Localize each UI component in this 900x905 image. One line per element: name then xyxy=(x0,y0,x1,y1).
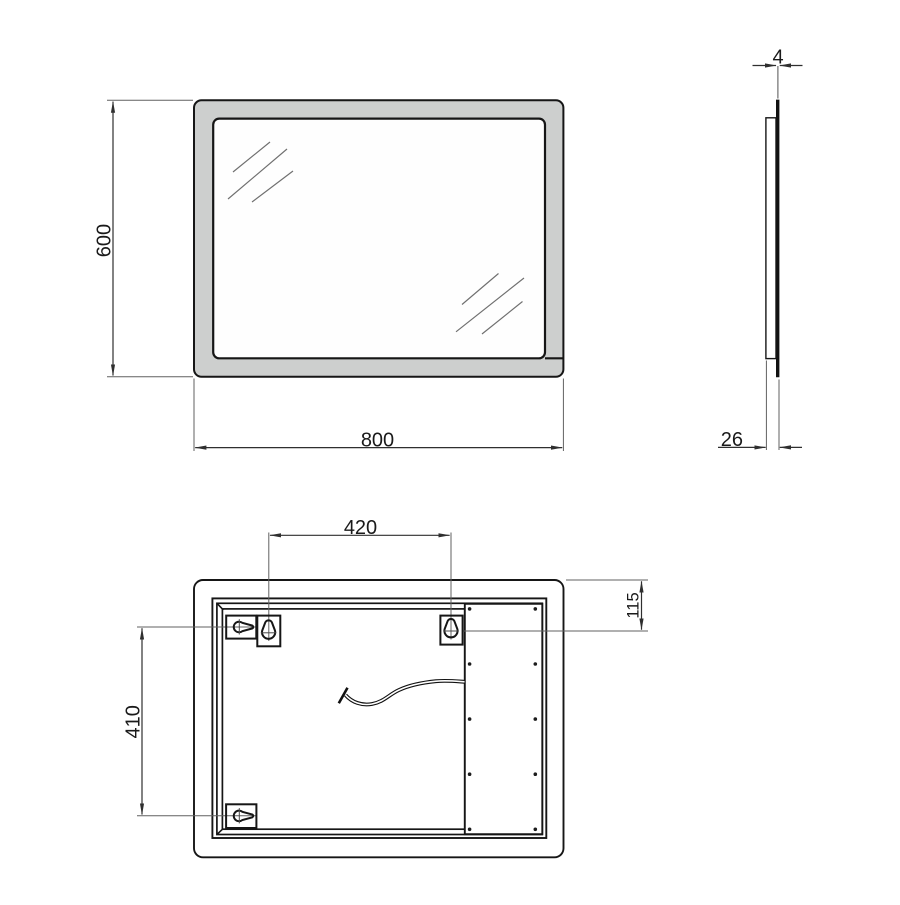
svg-text:600: 600 xyxy=(93,224,115,257)
svg-text:115: 115 xyxy=(625,592,643,618)
svg-text:4: 4 xyxy=(772,46,783,68)
svg-text:410: 410 xyxy=(123,705,145,738)
svg-text:420: 420 xyxy=(344,517,377,539)
svg-text:26: 26 xyxy=(721,429,743,451)
svg-text:800: 800 xyxy=(361,429,394,451)
